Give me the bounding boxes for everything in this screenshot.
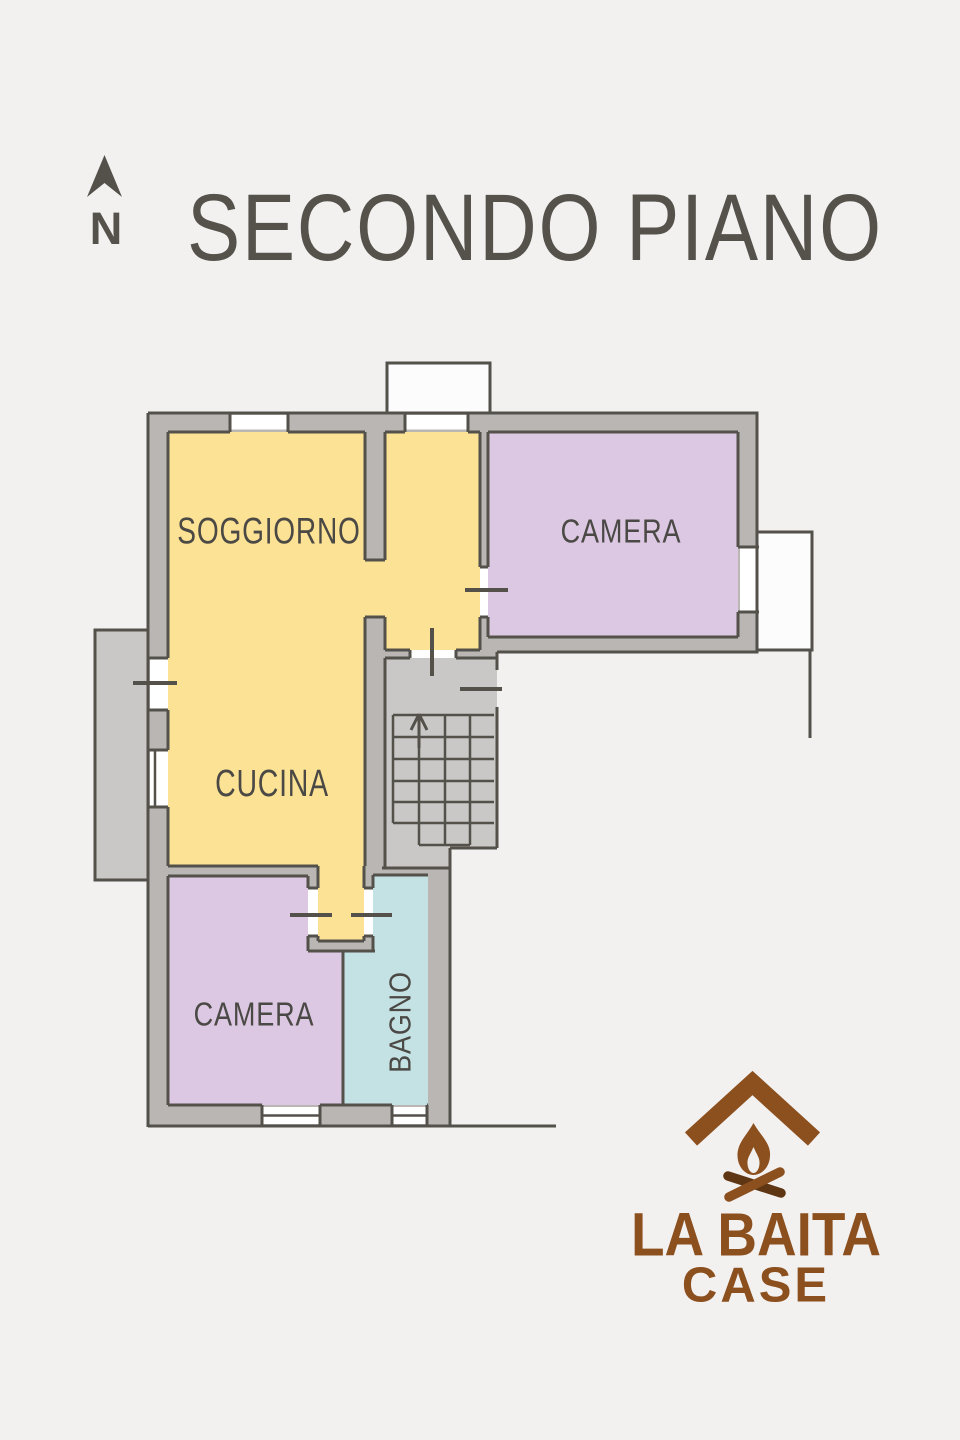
balcony-right: [757, 532, 812, 650]
room-label-camera-nord: CAMERA: [561, 515, 682, 548]
logo-text-line2: CASE: [682, 1262, 830, 1311]
floor-plan-page: SECONDO PIANO N SOGGIORNO CAMERA CUCINA …: [0, 0, 960, 1440]
room-label-camera-sud: CAMERA: [194, 998, 315, 1031]
balcony-left: [95, 630, 148, 880]
page-title: SECONDO PIANO: [187, 181, 883, 276]
compass-north-label: N: [86, 206, 126, 251]
room-label-bagno: BAGNO: [385, 971, 416, 1073]
room-label-soggiorno: SOGGIORNO: [177, 513, 360, 550]
room-label-cucina: CUCINA: [215, 765, 329, 803]
balcony-top: [387, 363, 490, 413]
north-arrow-icon: [87, 155, 122, 197]
logo-campfire-icon: [691, 1083, 814, 1197]
logo-text-line1: LA BAITA: [631, 1205, 881, 1266]
